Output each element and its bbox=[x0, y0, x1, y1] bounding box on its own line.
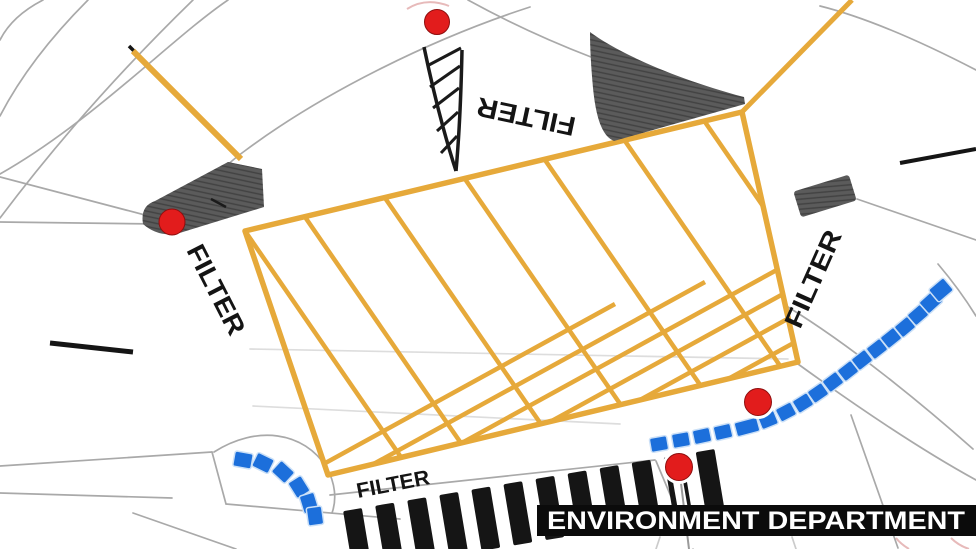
cycle-marking-square bbox=[650, 436, 668, 452]
caption-banner: ENVIRONMENT DEPARTMENT bbox=[537, 505, 976, 536]
cycle-marking-square bbox=[693, 428, 711, 444]
traffic-signal-right bbox=[745, 389, 772, 416]
cycle-marking-square bbox=[307, 507, 323, 526]
cycle-marking-square bbox=[714, 424, 733, 440]
traffic-signal-left bbox=[159, 209, 185, 235]
cycle-marking-square bbox=[233, 452, 252, 469]
caption-banner-label: ENVIRONMENT DEPARTMENT bbox=[547, 507, 965, 535]
traffic-signal-bottom bbox=[666, 454, 693, 481]
junction-scheme-plan: FILTER FILTER FILTER FILTER ENVIRONMENT … bbox=[0, 0, 976, 549]
traffic-signal-top bbox=[425, 10, 450, 35]
cycle-marking-square bbox=[672, 432, 690, 448]
junction-plan-svg: FILTER FILTER FILTER FILTER ENVIRONMENT … bbox=[0, 0, 976, 549]
